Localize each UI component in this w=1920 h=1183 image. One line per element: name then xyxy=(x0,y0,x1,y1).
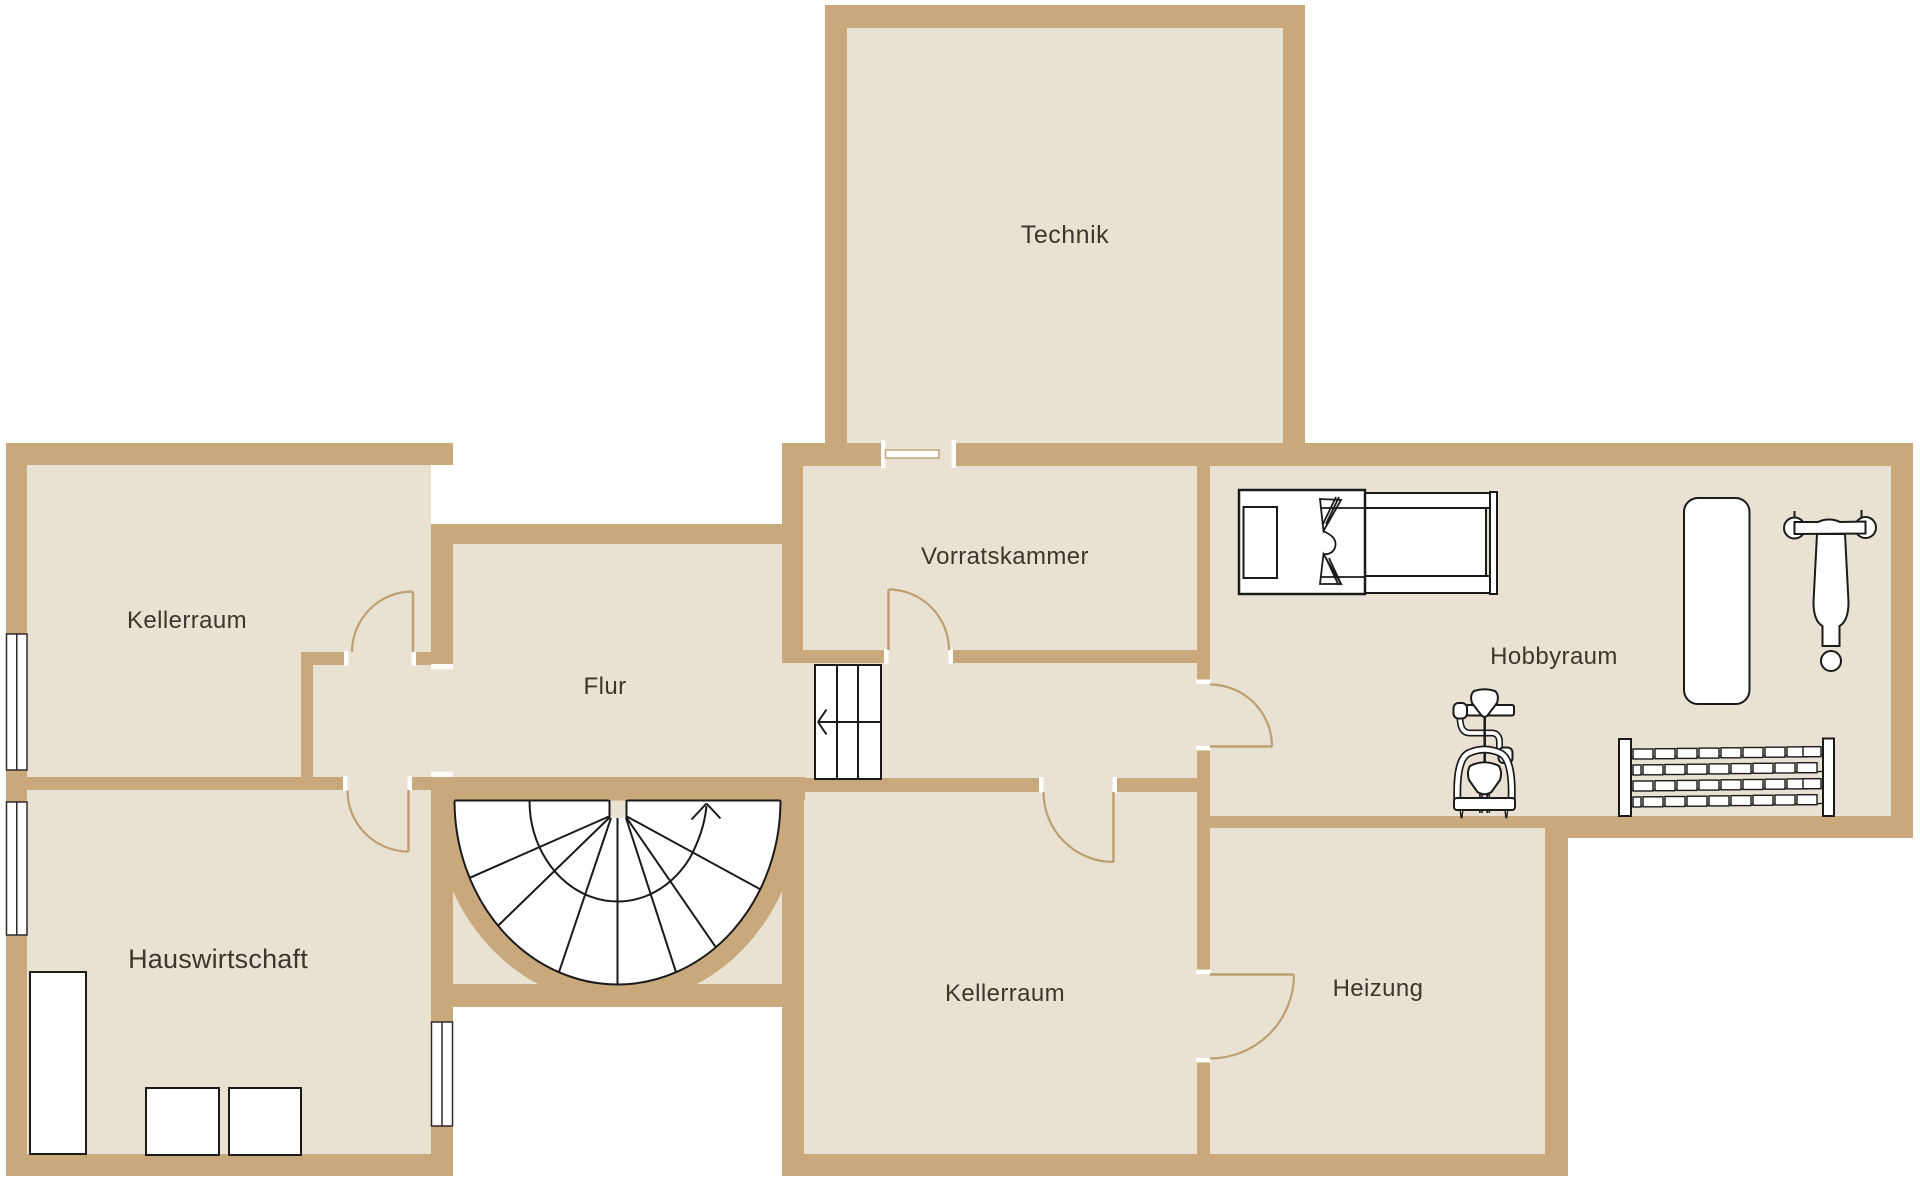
svg-text:Vorratskammer: Vorratskammer xyxy=(921,543,1089,570)
svg-text:Hauswirtschaft: Hauswirtschaft xyxy=(128,944,308,974)
svg-text:Flur: Flur xyxy=(584,673,627,700)
svg-text:Hobbyraum: Hobbyraum xyxy=(1490,643,1618,670)
svg-text:Kellerraum: Kellerraum xyxy=(127,607,247,634)
svg-text:Technik: Technik xyxy=(1021,221,1109,249)
svg-text:Heizung: Heizung xyxy=(1333,975,1424,1002)
svg-text:Kellerraum: Kellerraum xyxy=(945,980,1065,1007)
